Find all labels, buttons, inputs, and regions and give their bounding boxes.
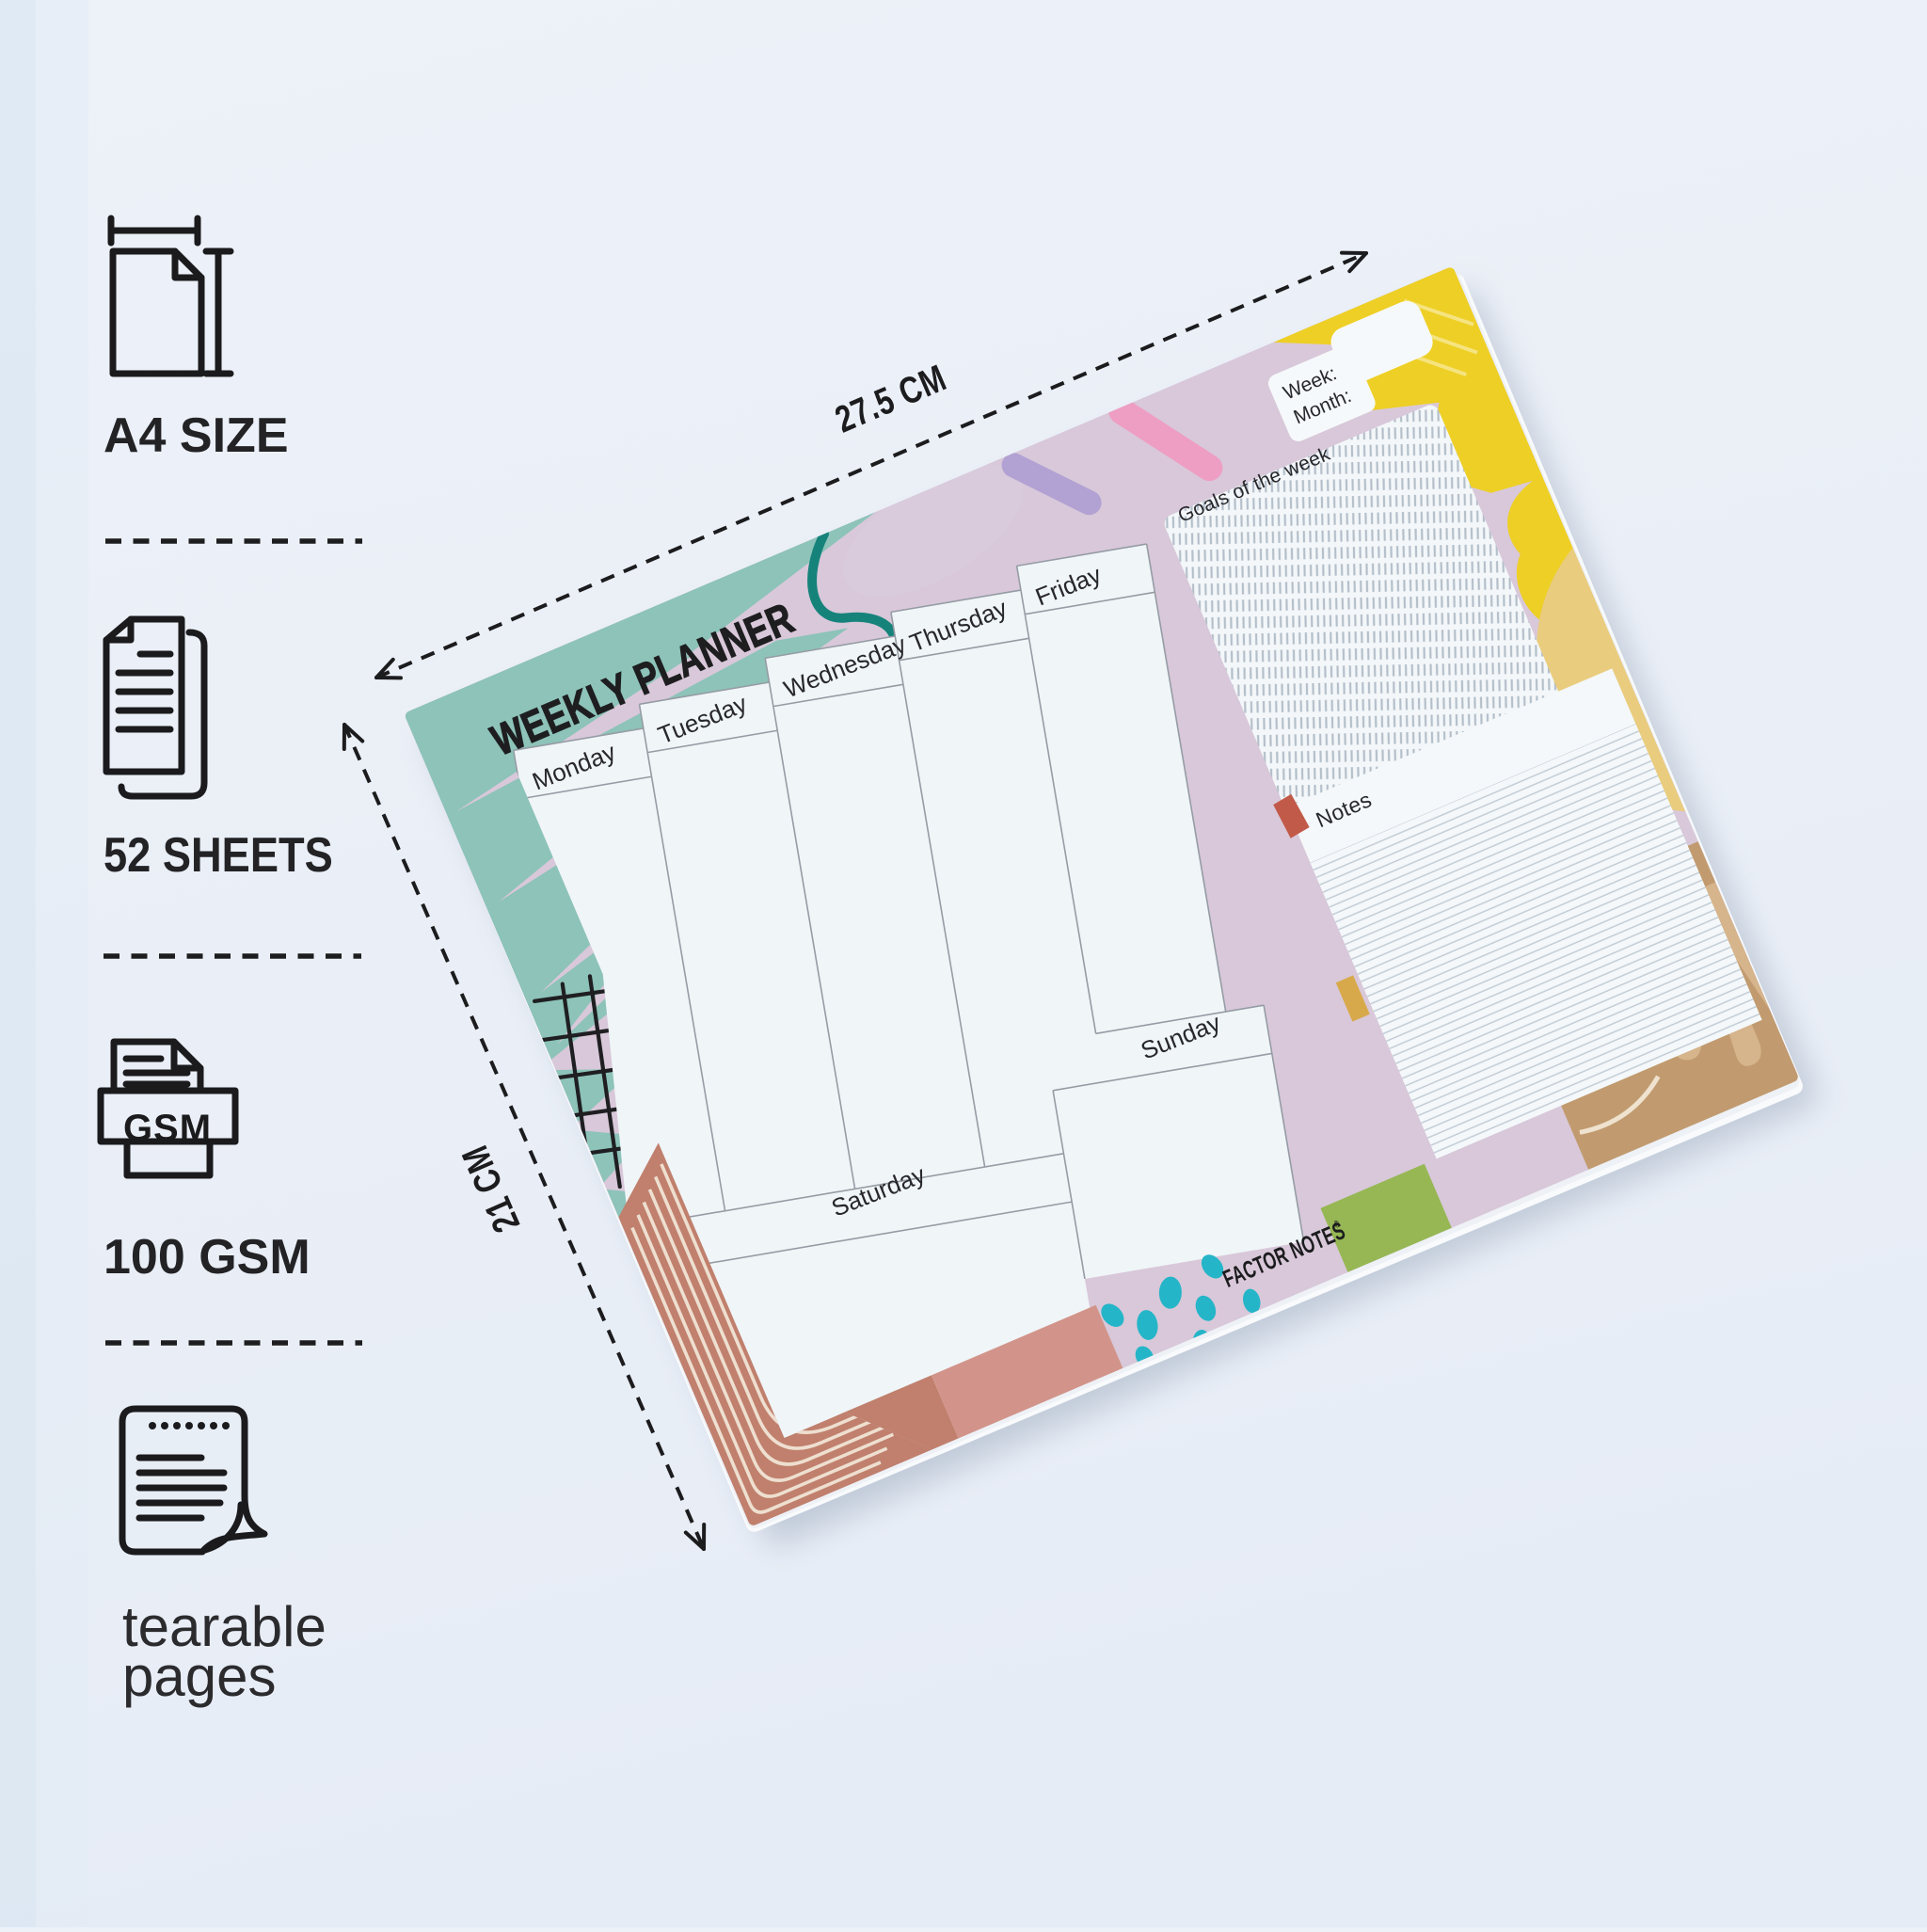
svg-text:A4 SIZE: A4 SIZE bbox=[104, 408, 289, 463]
svg-text:100 GSM: 100 GSM bbox=[104, 1230, 311, 1285]
svg-text:pages: pages bbox=[122, 1645, 276, 1708]
svg-text:52 SHEETS: 52 SHEETS bbox=[104, 828, 333, 883]
svg-text:GSM: GSM bbox=[123, 1108, 212, 1149]
